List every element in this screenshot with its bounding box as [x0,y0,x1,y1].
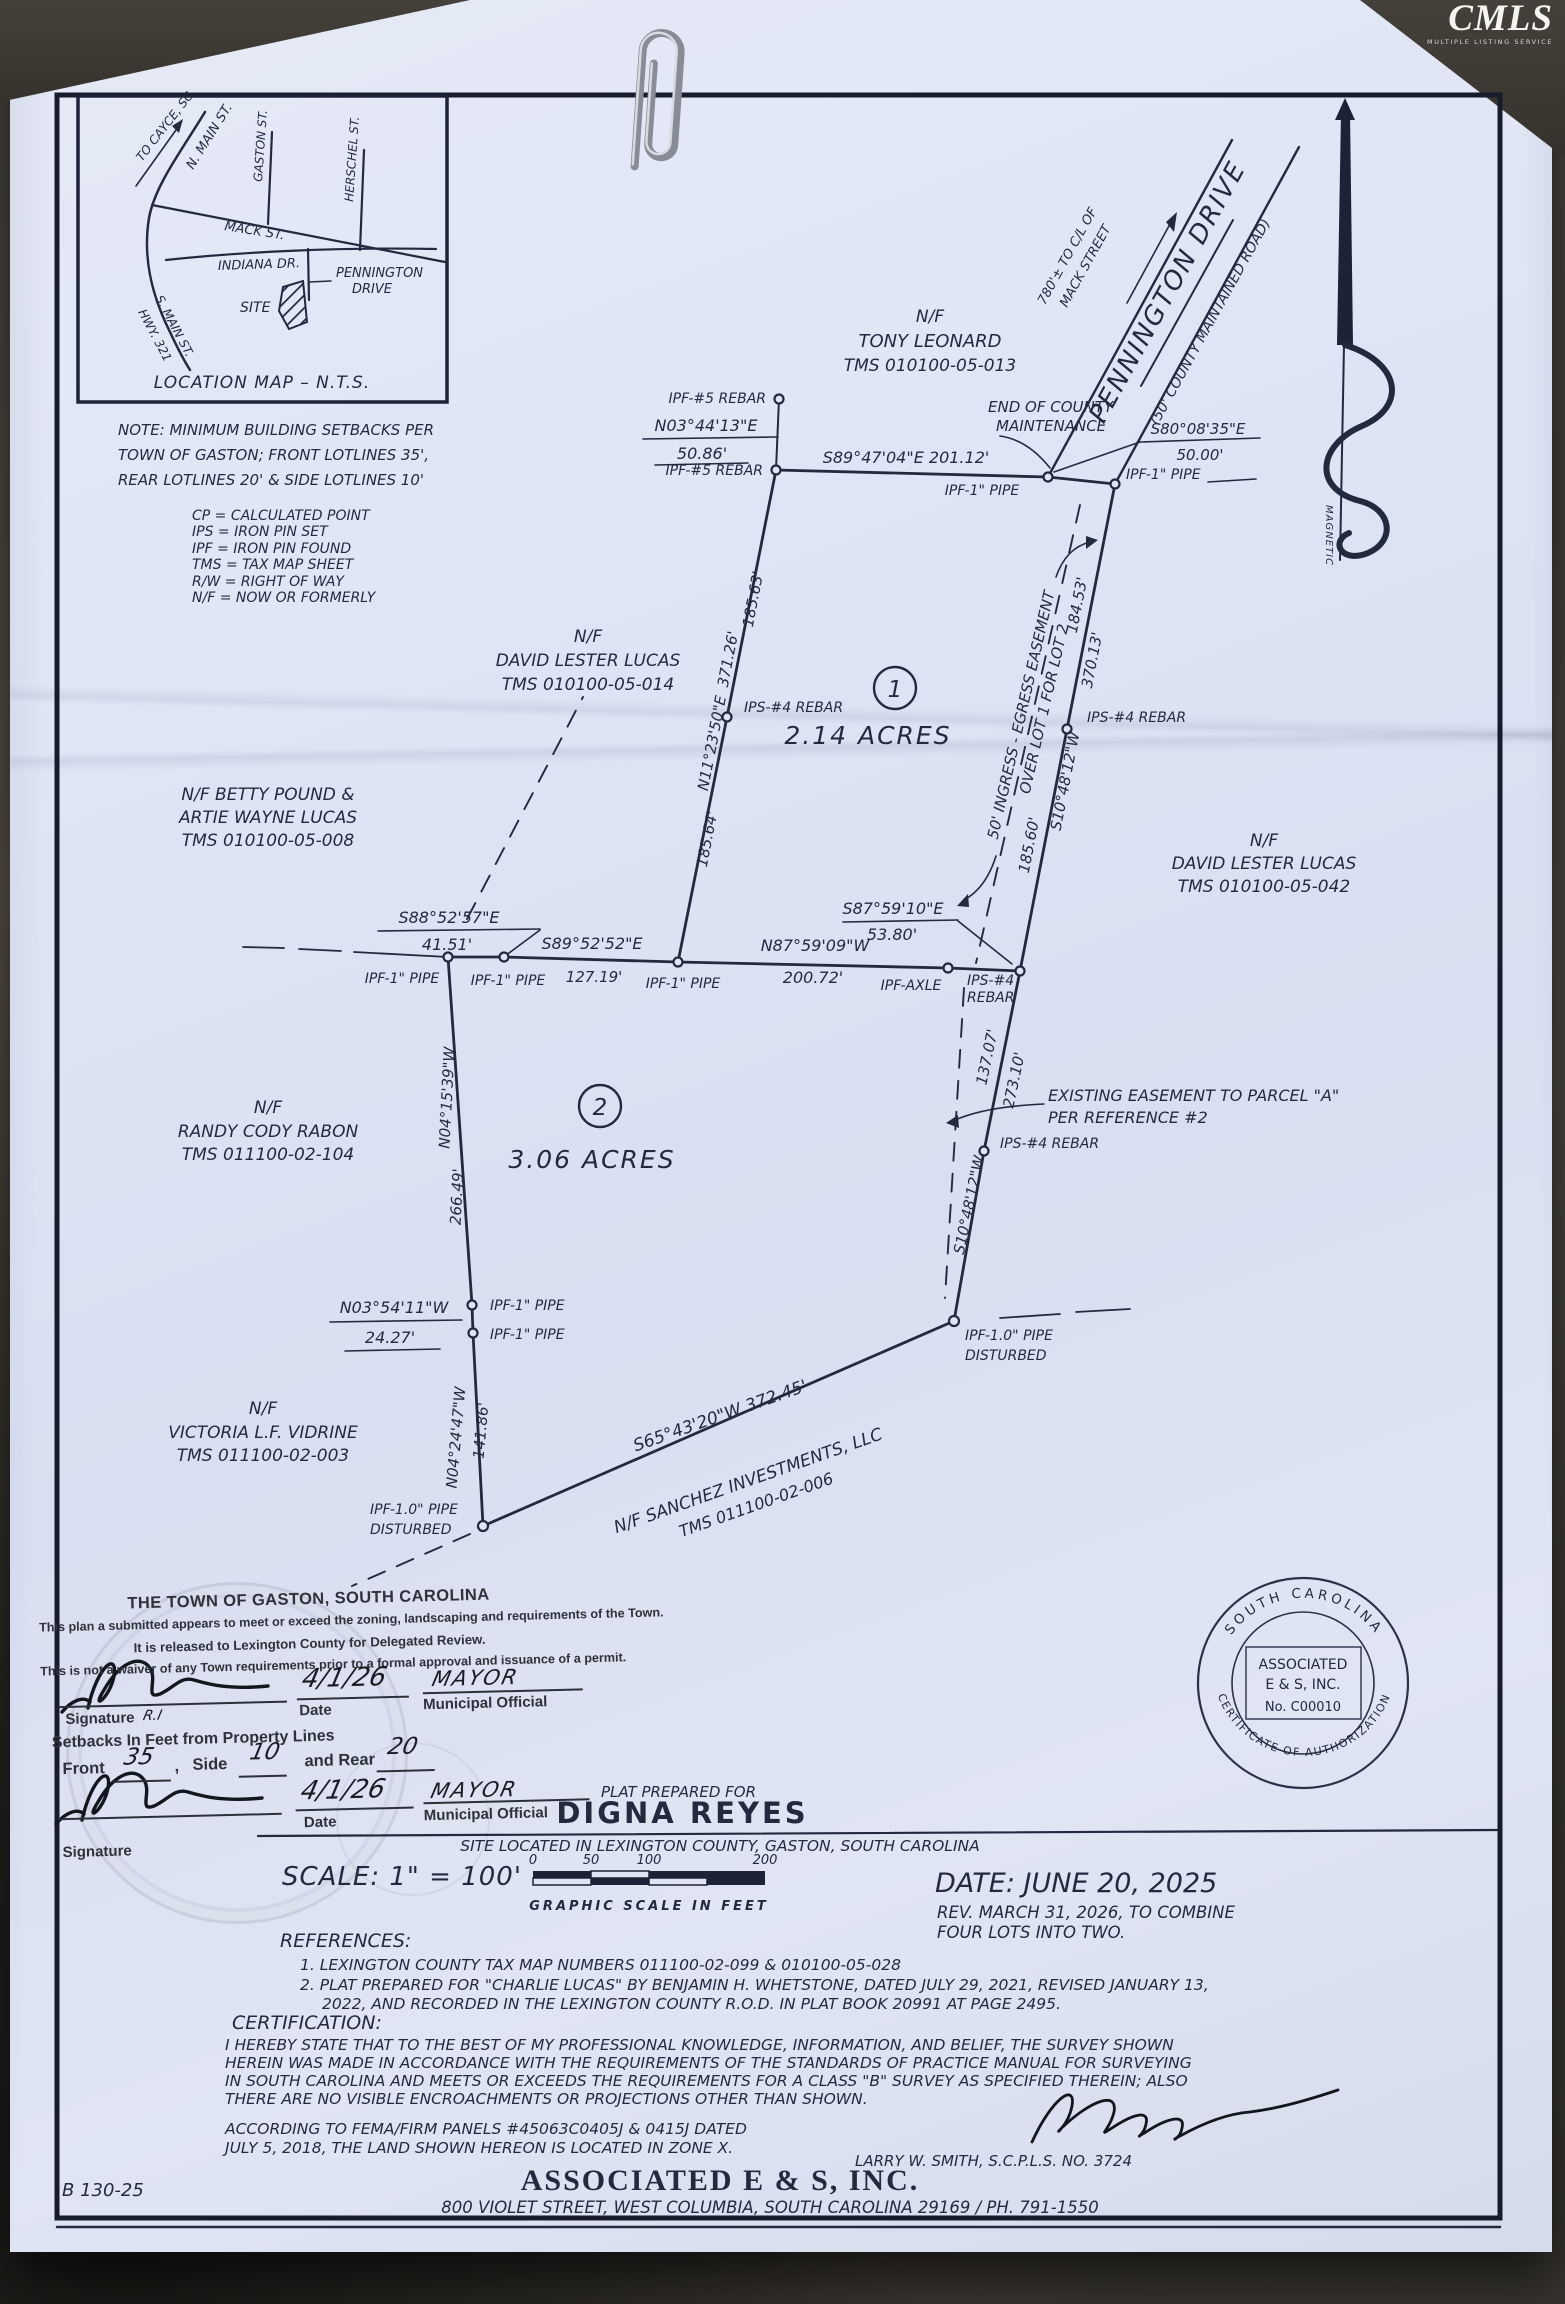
ipf5-label-top: IPF-#5 REBAR [669,391,766,407]
file-number: B 130-25 [62,2180,144,2201]
pennington-label-2: DRIVE [352,282,393,297]
s87-underline [843,920,958,922]
front-blank [113,1779,171,1782]
legend-line: N/F = NOW OR FORMERLY [192,590,375,606]
monument-ipf1-jog-top [468,1301,477,1310]
revision-2: FOUR LOTS INTO TWO. [937,1923,1125,1942]
rear-value: 20 [385,1733,420,1760]
date-line [297,1696,409,1701]
indiana-drive-road [166,249,436,260]
existing-easement-2: PER REFERENCE #2 [1048,1108,1208,1127]
course-jog-dist: 24.27' [365,1328,415,1347]
scale-seg [707,1878,765,1885]
north-line [776,470,1048,477]
course-m1-dist: 41.51' [422,935,472,954]
jog-underline2 [345,1349,440,1351]
course-m4: S87°59'10"E [842,899,944,918]
official-label-2: Municipal Official [424,1804,549,1824]
ipf1-mid2-label: IPF-1" PIPE [471,973,546,989]
parcel2-number: 2 [593,1095,608,1121]
date-label-1: Date [299,1702,332,1720]
old-lot-line-dashed [467,697,583,919]
monument-ipf5-corner [772,466,781,475]
official-label-1: Municipal Official [423,1693,548,1713]
course-m3: N87°59'09"W [761,936,871,955]
seal-firm-2: E & S, INC. [1265,1677,1340,1693]
signature-label-1: Signature [65,1709,135,1728]
north-arrow-scroll [1326,345,1392,556]
ips4-mid-label-1: IPS-#4 [967,973,1014,989]
adj-rabon-1: N/F [254,1098,282,1118]
ips4-mid-label-2: REBAR [967,990,1014,1006]
road-frontage-line [1048,477,1115,484]
scale-seg [591,1878,649,1885]
course-m1: S88°52'57"E [398,908,500,927]
scale-tick-100: 100 [637,1853,662,1868]
monument-ips4-east2 [980,1147,989,1156]
adj-pound-1: N/F BETTY POUND & [181,785,354,805]
note-line: TOWN OF GASTON; FRONT LOTLINES 35', [118,443,434,468]
monument-ipf1-jog-bottom [469,1329,478,1338]
pennington-label-1: PENNINGTON [336,266,423,281]
existing-easement-arrowhead [946,1115,959,1128]
ipf5-label-corner: IPF-#5 REBAR [666,463,763,479]
adj-vidrine-1: N/F [249,1399,277,1419]
firm-name: ASSOCIATED E & S, INC. [430,2164,1010,2198]
signature-line [59,1701,287,1709]
adj-vidrine-3: TMS 011100-02-003 [177,1446,350,1466]
firm-address: 800 VIOLET STREET, WEST COLUMBIA, SOUTH … [270,2198,1270,2217]
legend: CP = CALCULATED POINT IPS = IRON PIN SET… [192,508,375,606]
course-south: S65°43'20"W 372.45' [631,1376,810,1456]
s88-underline [378,929,540,931]
course-m2: S89°52'52"E [541,934,643,953]
monument-ipf10-sw [478,1521,488,1531]
ips4-east2-label: IPS-#4 REBAR [1000,1136,1099,1152]
scale-seg [649,1871,765,1878]
adj-rabon-2: RANDY CODY RABON [178,1122,359,1142]
adj-lucas14-1: N/F [574,627,602,647]
certification-line: THERE ARE NO VISIBLE ENCROACHMENTS OR PR… [225,2090,868,2108]
course-n03-dist: 50.86' [677,444,727,463]
ingress-arrowhead-bottom [957,894,969,907]
date-label-2: Date [304,1813,337,1831]
rear-label: and Rear [304,1750,375,1771]
date-value-1: 4/1/26 [299,1662,389,1694]
end-county-2: MAINTENANCE [996,417,1107,435]
mack-street-road [152,205,445,262]
client-name: DIGNA REYES [540,1796,825,1830]
surveyor-signature [1032,2090,1338,2142]
ipf1-mid1-label: IPF-1" PIPE [365,971,440,987]
south-extension-dashed [352,1534,470,1586]
scale-caption: GRAPHIC SCALE IN FEET [529,1899,768,1914]
course-e1-dist: 370.13' [1078,631,1106,690]
official-value-2: MAYOR [429,1777,520,1803]
legend-line: IPF = IRON PIN FOUND [192,541,375,557]
pennington-drive-road [308,249,309,300]
ips4-east1-label: IPS-#4 REBAR [1087,710,1186,726]
ipf1-label-road: IPF-1" PIPE [1126,467,1201,483]
legend-line: CP = CALCULATED POINT [192,508,375,524]
to-cayce-label: TO CAYCE, SC [133,89,196,164]
parcel2-area: 3.06 ACRES [508,1145,675,1174]
legend-line: R/W = RIGHT OF WAY [192,574,375,590]
ipf10-sw-label-1: IPF-1.0" PIPE [370,1502,458,1518]
scale-seg [649,1878,707,1885]
ipf10-se-label-1: IPF-1.0" PIPE [965,1328,1053,1344]
site-parcel-hatch [279,281,307,329]
seal-firm-3: No. C00010 [1265,1700,1341,1715]
seg-185-64: 185.64' [693,810,721,869]
note-line: NOTE: MINIMUM BUILDING SETBACKS PER [118,418,434,443]
adj-lucas42-3: TMS 010100-05-042 [1178,877,1351,897]
north-arrow: MAGNETIC [1323,98,1392,566]
front-label: Front [62,1759,105,1779]
ipf10-sw-label-2: DISTURBED [370,1522,452,1538]
location-map: TO CAYCE, SC N. MAIN ST. GASTON ST. HERS… [78,89,447,402]
fema-line: JULY 5, 2018, THE LAND SHOWN HEREON IS L… [225,2139,733,2157]
rear-blank [377,1769,435,1772]
adj-pound-2: ARTIE WAYNE LUCAS [178,808,357,828]
adj-lucas14-3: TMS 010100-05-014 [502,675,675,695]
front-value: 35 [121,1744,156,1771]
course-e2: S10°48'12"W [950,1153,989,1256]
setback-note: NOTE: MINIMUM BUILDING SETBACKS PER TOWN… [118,418,434,493]
side-value: 10 [247,1739,282,1766]
s87-leader [958,921,1012,964]
north-arrow-shaft [1340,345,1344,560]
magnetic-label: MAGNETIC [1323,505,1334,566]
course-s80: S80°08'35"E [1151,420,1246,438]
certification-line: HEREIN WAS MADE IN ACCORDANCE WITH THE R… [225,2054,1192,2072]
north-arrow-tip [1335,98,1355,120]
authorization-seal: SOUTH CAROLINA CERTIFICATE OF AUTHORIZAT… [1198,1578,1408,1788]
course-w3: N04°24'47"W [443,1385,470,1489]
ipf-axle-label: IPF-AXLE [881,978,942,994]
ipf10-se-label-2: DISTURBED [965,1348,1047,1364]
scale-tick-50: 50 [583,1853,600,1868]
fema-line: ACCORDING TO FEMA/FIRM PANELS #45063C040… [225,2120,747,2138]
official-value-1: MAYOR [430,1665,521,1691]
monument-ipf10-se [949,1316,959,1326]
course-w1: N11°23'50"E [694,693,730,792]
parcel1-number: 1 [888,677,903,703]
seg-273-10: 273.10' [999,1050,1028,1109]
parcel1-area: 2.14 ACRES [784,721,951,750]
course-n03: N03°44'13"E [655,416,759,435]
ipf1-label-north: IPF-1" PIPE [945,483,1020,499]
setbacks-heading: Setbacks In Feet from Property Lines [52,1727,335,1752]
course-jog: N03°54'11"W [340,1298,450,1317]
monument-ipf5-top [775,395,784,404]
course-m2-dist: 127.19' [566,968,623,986]
side-blank [239,1775,287,1778]
scale-tick-200: 200 [753,1853,778,1868]
n-main-st-label: N. MAIN ST. [184,101,236,172]
n03-underline [643,437,778,439]
side-label: Side [192,1755,227,1775]
gaston-st-label: GASTON ST. [251,109,270,182]
reference-line: 2. PLAT PREPARED FOR "CHARLIE LUCAS" BY … [300,1976,1209,1994]
gaston-street-road [268,132,272,224]
indiana-dr-label: INDIANA DR. [218,256,301,274]
course-w3-dist: 141.86' [470,1402,493,1460]
certification-line: IN SOUTH CAROLINA AND MEETS OR EXCEEDS T… [225,2072,1188,2090]
adj-rabon-3: TMS 011100-02-104 [182,1145,355,1165]
adj-lucas42-2: DAVID LESTER LUCAS [1172,854,1357,874]
jog-underline [330,1320,462,1322]
certification-line: I HEREBY STATE THAT TO THE BEST OF MY PR… [225,2036,1174,2054]
signature-label-2: Signature [62,1842,132,1861]
ingress-leader-top [1056,542,1090,577]
reference-line: 1. LEXINGTON COUNTY TAX MAP NUMBERS 0111… [300,1956,901,1974]
monument-ipf1-mid3 [674,958,683,967]
mack-st-label: MACK ST. [223,219,285,243]
monument-ipf1-north [1044,473,1053,482]
date-line-2 [296,1807,414,1812]
adj-lucas14-2: DAVID LESTER LUCAS [496,651,681,671]
course-s80-dist: 50.00' [1176,446,1223,464]
adj-lucas42-1: N/F [1250,831,1278,851]
west-tie-break-line [243,947,448,957]
legend-line: TMS = TAX MAP SHEET [192,557,375,573]
course-e1: S10°48'12"W [1047,729,1084,832]
scale-seg [591,1871,649,1878]
course-w2: N04°15'39"W [435,1045,458,1149]
note-line: REAR LOTLINES 20' & SIDE LOTLINES 10' [118,468,434,493]
setbacks-comma: , [174,1757,179,1776]
course-m4-dist: 53.80' [867,925,917,944]
pennington-leader [309,281,331,282]
east-tie-break-line [1000,1309,1130,1318]
ipf1-mid3-label: IPF-1" PIPE [646,976,721,992]
reference-line: 2022, AND RECORDED IN THE LEXINGTON COUN… [322,1995,1061,2013]
s88-leader [505,930,540,956]
course-m3-dist: 200.72' [783,968,843,987]
herschel-street-road [360,150,364,250]
date-value-2: 4/1/26 [298,1774,388,1806]
ingress-leader-bottom [964,856,996,900]
legend-line: IPS = IRON PIN SET [192,524,375,540]
adj-leonard-1: N/F [916,307,944,327]
scale-text: SCALE: 1" = 100' [282,1862,522,1892]
ingress-arrowhead-top [1086,536,1098,549]
pipe-tick [1208,479,1256,482]
ips4-west1-label: IPS-#4 REBAR [744,700,843,716]
adj-leonard-2: TONY LEONARD [858,331,1001,352]
course-w2-dist: 266.49' [447,1168,468,1225]
seg-185-63: 185.63' [739,570,767,629]
tie-line-50-86 [776,399,779,470]
initials: R.I [141,1708,163,1725]
location-map-caption: LOCATION MAP – N.T.S. [154,373,370,393]
town-approval-stamp: THE TOWN OF GASTON, SOUTH CAROLINA This … [38,1581,585,1904]
site-label: SITE [240,300,271,316]
s80-underline [1140,438,1260,442]
adj-vidrine-2: VICTORIA L.F. VIDRINE [168,1423,358,1443]
adj-leonard-3: TMS 010100-05-013 [844,356,1017,376]
date-text: DATE: JUNE 20, 2025 [935,1868,1217,1899]
monument-ipf1-mid2 [500,953,509,962]
middle-line [448,957,1020,971]
monument-ipf1-road [1111,480,1120,489]
existing-easement-1: EXISTING EASEMENT TO PARCEL "A" [1048,1086,1339,1105]
references-heading: REFERENCES: [280,1930,411,1952]
site-location: SITE LOCATED IN LEXINGTON COUNTY, GASTON… [420,1837,1020,1855]
course-s89-47: S89°47'04"E 201.12' [823,448,990,467]
monument-ips4-mid-east [1016,967,1025,976]
revision-1: REV. MARCH 31, 2026, TO COMBINE [937,1903,1235,1922]
ipf1-jog1-label: IPF-1" PIPE [490,1298,565,1314]
plat-photo: CMLS MULTIPLE LISTING SERVICE TO CAY [0,0,1565,2304]
adj-pound-3: TMS 010100-05-008 [182,831,355,851]
ipf1-jog2-label: IPF-1" PIPE [490,1327,565,1343]
signature-line-2 [58,1813,282,1820]
end-of-maintenance-leader [1000,436,1050,468]
monument-ipf-axle [944,964,953,973]
north-arrow-needle [1337,112,1353,345]
certification-heading: CERTIFICATION: [232,2012,382,2034]
herschel-st-label: HERSCHEL ST. [342,116,362,202]
drawing-labels: N/F TONY LEONARD TMS 010100-05-013 IPF-#… [168,156,1356,1541]
seal-firm-1: ASSOCIATED [1259,1657,1348,1673]
paperclip [633,32,682,169]
